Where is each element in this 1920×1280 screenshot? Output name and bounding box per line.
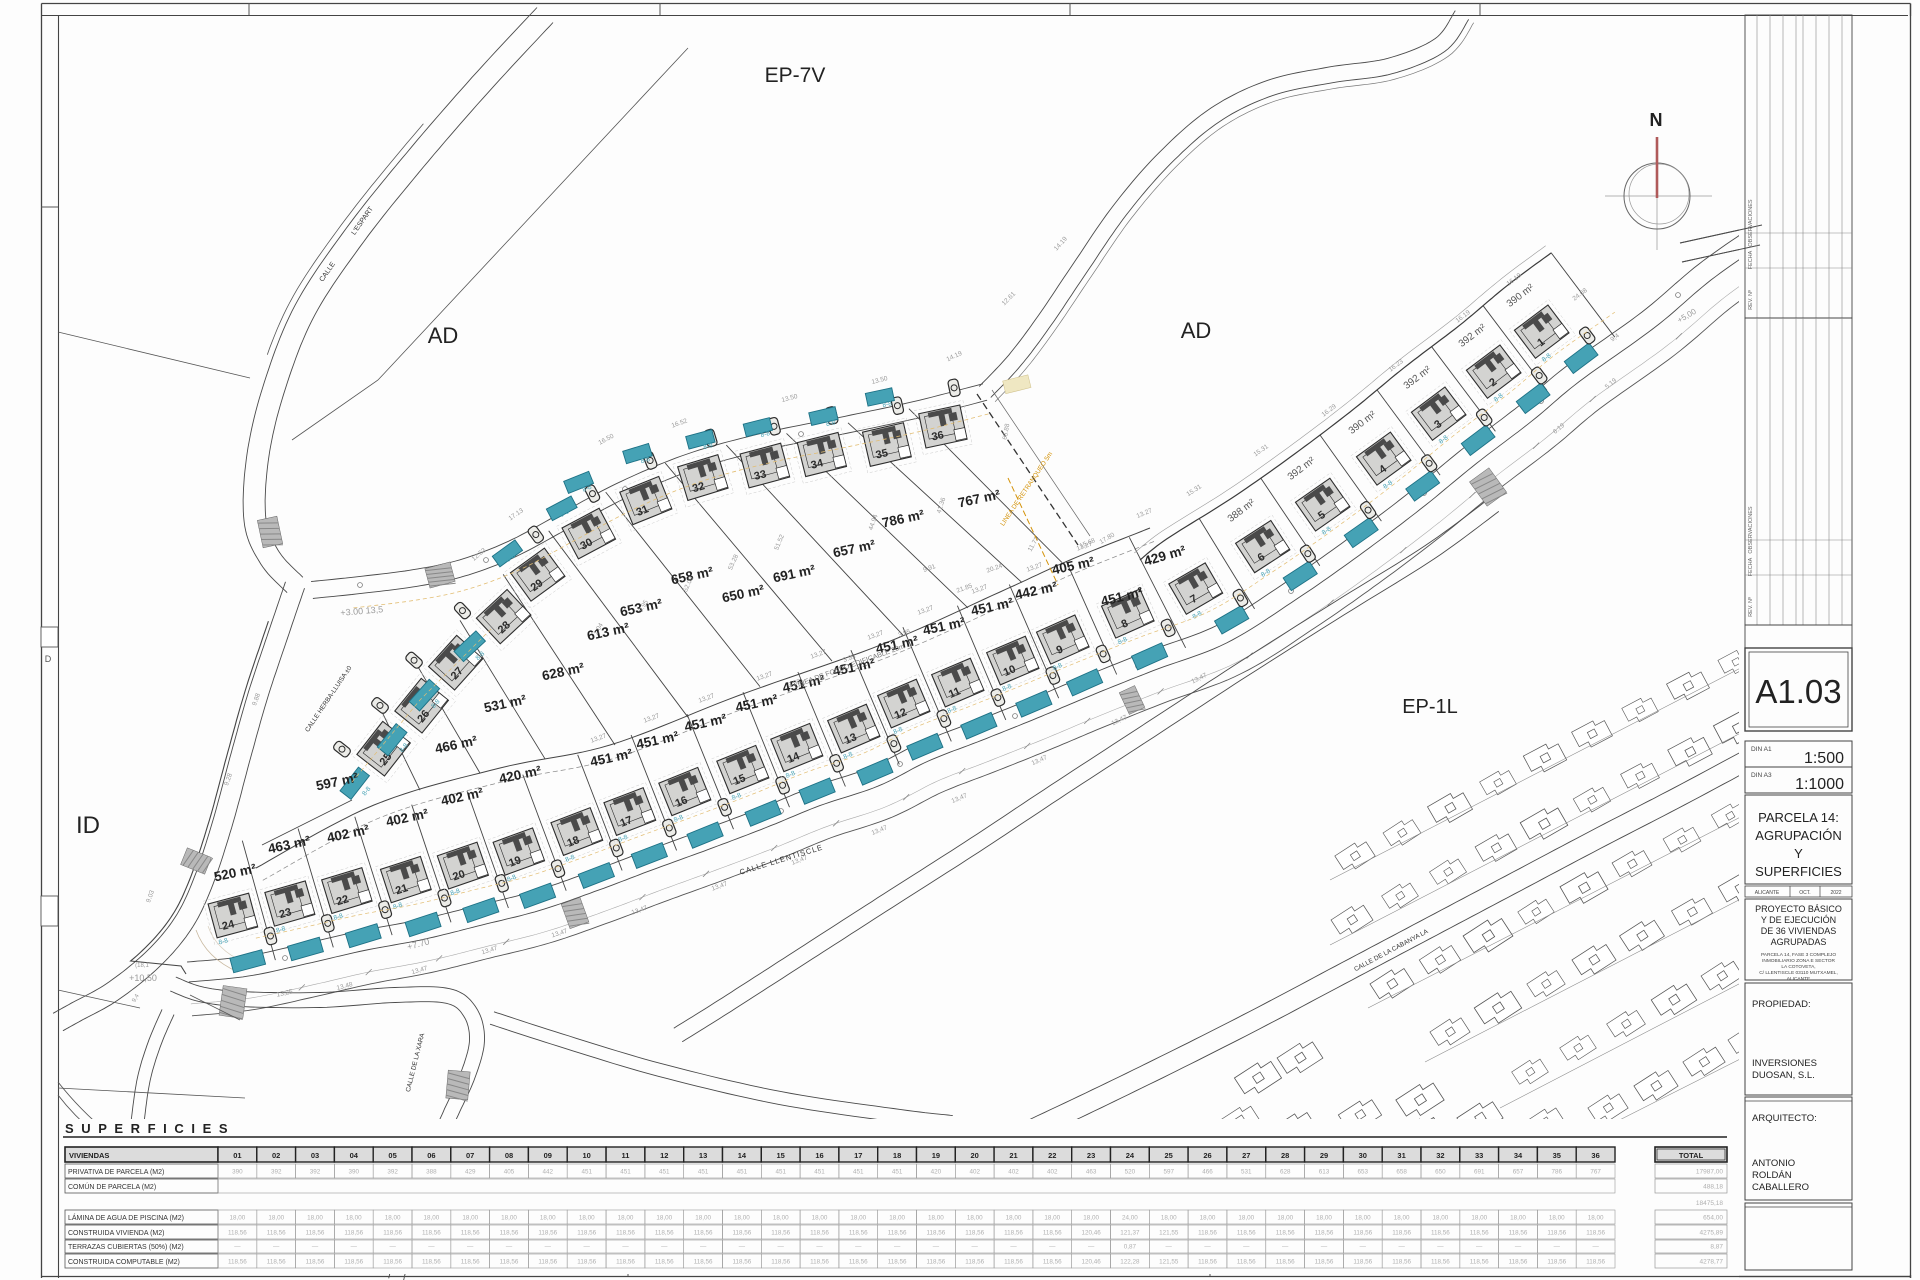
- svg-text:118,56: 118,56: [694, 1259, 713, 1266]
- svg-text:18,00: 18,00: [1083, 1215, 1099, 1222]
- svg-text:118,56: 118,56: [927, 1259, 946, 1266]
- svg-text:2022: 2022: [1830, 890, 1841, 896]
- svg-text:INVERSIONES: INVERSIONES: [1752, 1058, 1817, 1069]
- svg-text:451: 451: [698, 1169, 709, 1176]
- svg-text:118,56: 118,56: [1431, 1230, 1450, 1237]
- svg-text:18,00: 18,00: [1355, 1215, 1371, 1222]
- svg-text:650: 650: [1435, 1169, 1446, 1176]
- svg-text:12: 12: [660, 1151, 668, 1160]
- svg-text:402: 402: [1008, 1169, 1019, 1176]
- svg-text:118,56: 118,56: [500, 1259, 519, 1266]
- svg-text:402: 402: [969, 1169, 980, 1176]
- svg-text:15: 15: [777, 1151, 785, 1160]
- svg-text:—: —: [778, 1244, 785, 1251]
- svg-text:18,00: 18,00: [424, 1215, 440, 1222]
- svg-text:691: 691: [1474, 1169, 1485, 1176]
- svg-text:07: 07: [466, 1151, 474, 1160]
- svg-text:Y DE EJECUCIÓN: Y DE EJECUCIÓN: [1761, 915, 1836, 925]
- svg-text:118,56: 118,56: [655, 1230, 674, 1237]
- svg-text:118,56: 118,56: [1509, 1230, 1528, 1237]
- svg-text:118,56: 118,56: [422, 1230, 441, 1237]
- svg-text:—: —: [1437, 1244, 1444, 1251]
- svg-text:18,00: 18,00: [928, 1215, 944, 1222]
- svg-text:118,56: 118,56: [810, 1230, 829, 1237]
- svg-text:LÁMINA DE AGUA DE PISCINA: LÁMINA DE AGUA DE PISCINA (M2): [68, 1213, 184, 1222]
- svg-text:392: 392: [310, 1169, 321, 1176]
- svg-text:118,56: 118,56: [383, 1259, 402, 1266]
- svg-text:118,56: 118,56: [849, 1230, 868, 1237]
- svg-text:36: 36: [1591, 1151, 1599, 1160]
- svg-text:118,56: 118,56: [1470, 1259, 1489, 1266]
- svg-text:653: 653: [1358, 1169, 1369, 1176]
- svg-text:118,56: 118,56: [1470, 1230, 1489, 1237]
- svg-text:118,56: 118,56: [1431, 1259, 1450, 1266]
- svg-text:118,56: 118,56: [927, 1230, 946, 1237]
- svg-text:DUOSAN, S.L.: DUOSAN, S.L.: [1752, 1070, 1815, 1081]
- svg-text:8,87: 8,87: [1710, 1244, 1723, 1251]
- svg-text:18,00: 18,00: [540, 1215, 556, 1222]
- svg-text:118,56: 118,56: [538, 1259, 557, 1266]
- svg-text:28: 28: [1281, 1151, 1289, 1160]
- svg-text:VIVIENDAS: VIVIENDAS: [69, 1151, 109, 1160]
- svg-text:25: 25: [1165, 1151, 1173, 1160]
- svg-text:—: —: [1321, 1244, 1328, 1251]
- svg-text:18,00: 18,00: [734, 1215, 750, 1222]
- svg-text:—: —: [1592, 1244, 1599, 1251]
- svg-text:0,87: 0,87: [1124, 1244, 1137, 1251]
- svg-text:10: 10: [583, 1151, 591, 1160]
- svg-text:A1.03: A1.03: [1755, 673, 1841, 710]
- svg-text:628: 628: [1280, 1169, 1291, 1176]
- svg-text:420: 420: [931, 1169, 942, 1176]
- svg-text:D: D: [45, 654, 52, 664]
- svg-text:DE 36 VIVIENDAS: DE 36 VIVIENDAS: [1761, 926, 1837, 936]
- svg-text:118,56: 118,56: [771, 1230, 790, 1237]
- svg-text:463: 463: [1086, 1169, 1097, 1176]
- svg-text:ARQUITECTO:: ARQUITECTO:: [1752, 1113, 1817, 1124]
- svg-text:—: —: [1476, 1244, 1483, 1251]
- svg-text:24: 24: [1126, 1151, 1135, 1160]
- svg-text:24,00: 24,00: [1122, 1215, 1138, 1222]
- svg-text:FECHA: FECHA: [1748, 557, 1754, 576]
- svg-text:—: —: [351, 1244, 358, 1251]
- svg-text:18,00: 18,00: [773, 1215, 789, 1222]
- svg-text:451: 451: [581, 1169, 592, 1176]
- svg-text:11: 11: [622, 1151, 630, 1160]
- svg-text:AD: AD: [428, 323, 459, 348]
- svg-text:18,00: 18,00: [1471, 1215, 1487, 1222]
- svg-text:118,56: 118,56: [1547, 1230, 1566, 1237]
- svg-text:02: 02: [272, 1151, 280, 1160]
- svg-text:—: —: [894, 1244, 901, 1251]
- svg-text:14: 14: [738, 1151, 747, 1160]
- svg-text:31: 31: [1397, 1151, 1405, 1160]
- svg-text:18,00: 18,00: [1006, 1215, 1022, 1222]
- svg-text:EP-7V: EP-7V: [765, 64, 826, 87]
- svg-text:767: 767: [1590, 1169, 1601, 1176]
- svg-text:388: 388: [426, 1169, 437, 1176]
- svg-text:405: 405: [504, 1169, 515, 1176]
- svg-text:01: 01: [233, 1151, 241, 1160]
- svg-text:04: 04: [350, 1151, 359, 1160]
- svg-text:451: 451: [775, 1169, 786, 1176]
- svg-text:PARCELA 14:: PARCELA 14:: [1758, 810, 1839, 825]
- svg-text:—: —: [273, 1244, 280, 1251]
- svg-text:657: 657: [1513, 1169, 1524, 1176]
- svg-text:451: 451: [737, 1169, 748, 1176]
- svg-text:786: 786: [1552, 1169, 1563, 1176]
- svg-text:INMOBILIARIO ZONA E SECTOR: INMOBILIARIO ZONA E SECTOR: [1762, 958, 1835, 964]
- svg-text:ALICANTE: ALICANTE: [1787, 976, 1810, 982]
- svg-text:118,56: 118,56: [694, 1230, 713, 1237]
- svg-text:402: 402: [1047, 1169, 1058, 1176]
- svg-text:120,46: 120,46: [1081, 1259, 1101, 1266]
- svg-text:CONSTRUIDA COMPUTABLE (M2): CONSTRUIDA COMPUTABLE (M2): [68, 1259, 180, 1266]
- svg-text:118,56: 118,56: [344, 1230, 363, 1237]
- svg-text:—: —: [1282, 1244, 1289, 1251]
- svg-text:18,00: 18,00: [385, 1215, 401, 1222]
- svg-text:1:1000: 1:1000: [1795, 776, 1844, 793]
- svg-text:18,00: 18,00: [1238, 1215, 1254, 1222]
- svg-text:118,56: 118,56: [733, 1259, 752, 1266]
- svg-text:118,56: 118,56: [344, 1259, 363, 1266]
- svg-text:121,55: 121,55: [1159, 1259, 1179, 1266]
- svg-text:18,00: 18,00: [695, 1215, 711, 1222]
- svg-text:—: —: [389, 1244, 396, 1251]
- svg-text:118,56: 118,56: [1004, 1259, 1023, 1266]
- svg-text:118,56: 118,56: [267, 1230, 286, 1237]
- svg-text:18,00: 18,00: [1277, 1215, 1293, 1222]
- svg-text:118,56: 118,56: [267, 1259, 286, 1266]
- svg-text:118,56: 118,56: [849, 1259, 868, 1266]
- svg-text:—: —: [1204, 1244, 1211, 1251]
- svg-text:118,56: 118,56: [1004, 1230, 1023, 1237]
- svg-text:—: —: [1088, 1244, 1095, 1251]
- svg-text:118,56: 118,56: [1198, 1259, 1217, 1266]
- svg-text:30: 30: [1359, 1151, 1367, 1160]
- svg-text:—: —: [661, 1244, 668, 1251]
- svg-text:18,00: 18,00: [462, 1215, 478, 1222]
- svg-text:—: —: [467, 1244, 474, 1251]
- svg-text:121,37: 121,37: [1120, 1230, 1140, 1237]
- svg-text:EP-1L: EP-1L: [1402, 696, 1458, 718]
- svg-text:118,56: 118,56: [616, 1259, 635, 1266]
- svg-text:REV. Nº: REV. Nº: [1747, 597, 1754, 617]
- svg-text:OBSERVACIONES: OBSERVACIONES: [1748, 199, 1754, 247]
- svg-text:392: 392: [387, 1169, 398, 1176]
- svg-text:442: 442: [543, 1169, 554, 1176]
- svg-text:29: 29: [1320, 1151, 1328, 1160]
- svg-text:392: 392: [271, 1169, 282, 1176]
- svg-text:—: —: [1515, 1244, 1522, 1251]
- svg-text:118,56: 118,56: [500, 1230, 519, 1237]
- svg-text:C/ LLENTISCLE 03110 MUTXAMEL,: C/ LLENTISCLE 03110 MUTXAMEL,: [1759, 970, 1838, 976]
- svg-text:118,56: 118,56: [461, 1230, 480, 1237]
- svg-text:36: 36: [931, 429, 945, 443]
- svg-text:118,56: 118,56: [965, 1230, 984, 1237]
- svg-text:REV. Nº: REV. Nº: [1747, 290, 1754, 310]
- svg-text:—: —: [700, 1244, 707, 1251]
- svg-text:531: 531: [1241, 1169, 1252, 1176]
- svg-text:118,56: 118,56: [1315, 1259, 1334, 1266]
- svg-text:18,00: 18,00: [230, 1215, 246, 1222]
- svg-text:OBSERVACIONES: OBSERVACIONES: [1748, 506, 1754, 554]
- svg-text:ROLDÁN: ROLDÁN: [1752, 1170, 1792, 1181]
- svg-text:118,56: 118,56: [810, 1259, 829, 1266]
- svg-text:451: 451: [814, 1169, 825, 1176]
- svg-text:—: —: [1398, 1244, 1405, 1251]
- svg-text:118,56: 118,56: [422, 1259, 441, 1266]
- svg-text:13: 13: [699, 1151, 707, 1160]
- svg-text:—: —: [622, 1244, 629, 1251]
- svg-text:4278,77: 4278,77: [1700, 1259, 1724, 1266]
- svg-text:429: 429: [465, 1169, 476, 1176]
- svg-text:26: 26: [1203, 1151, 1211, 1160]
- svg-text:PROPIEDAD:: PROPIEDAD:: [1752, 999, 1811, 1010]
- svg-text:—: —: [933, 1244, 940, 1251]
- svg-text:118,56: 118,56: [1392, 1230, 1411, 1237]
- svg-text:18,00: 18,00: [656, 1215, 672, 1222]
- svg-text:658: 658: [1396, 1169, 1407, 1176]
- svg-text:20: 20: [971, 1151, 979, 1160]
- svg-text:ID: ID: [76, 812, 100, 839]
- svg-text:18,00: 18,00: [1588, 1215, 1604, 1222]
- svg-text:4275,89: 4275,89: [1700, 1230, 1724, 1237]
- svg-text:18,00: 18,00: [579, 1215, 595, 1222]
- svg-text:PRIVATIVA DE PARCELA (M2): PRIVATIVA DE PARCELA (M2): [68, 1169, 164, 1176]
- svg-text:18,00: 18,00: [1394, 1215, 1410, 1222]
- svg-text:118,56: 118,56: [655, 1259, 674, 1266]
- svg-text:S U P E R F I C I E S: S U P E R F I C I E S: [65, 1121, 230, 1136]
- svg-text:PARCELA 14, FASE 3 COMPLEJO: PARCELA 14, FASE 3 COMPLEJO: [1761, 952, 1836, 958]
- svg-text:DIN A3: DIN A3: [1751, 772, 1772, 779]
- svg-text:19: 19: [932, 1151, 940, 1160]
- svg-text:18,00: 18,00: [1433, 1215, 1449, 1222]
- svg-text:118,56: 118,56: [1509, 1259, 1528, 1266]
- svg-text:TERRAZAS CUBIERTAS (50%) (M: TERRAZAS CUBIERTAS (50%) (M2): [68, 1244, 184, 1251]
- svg-text:05: 05: [388, 1151, 396, 1160]
- svg-text:08: 08: [505, 1151, 513, 1160]
- svg-text:(18,1: (18,1: [135, 963, 149, 969]
- svg-text:CABALLERO: CABALLERO: [1752, 1182, 1809, 1193]
- svg-text:ALICANTE: ALICANTE: [1755, 890, 1780, 896]
- svg-text:121,55: 121,55: [1159, 1230, 1179, 1237]
- svg-text:118,56: 118,56: [228, 1259, 247, 1266]
- svg-text:118,56: 118,56: [306, 1259, 325, 1266]
- svg-text:18,00: 18,00: [1510, 1215, 1526, 1222]
- svg-text:N: N: [1650, 110, 1663, 130]
- svg-text:1:500: 1:500: [1804, 750, 1844, 767]
- svg-text:—: —: [584, 1244, 591, 1251]
- svg-text:06: 06: [427, 1151, 435, 1160]
- svg-text:—: —: [545, 1244, 552, 1251]
- svg-text:118,56: 118,56: [888, 1259, 907, 1266]
- svg-text:118,56: 118,56: [1353, 1230, 1372, 1237]
- svg-text:34: 34: [1514, 1151, 1523, 1160]
- svg-text:18: 18: [893, 1151, 901, 1160]
- svg-text:18,00: 18,00: [1549, 1215, 1565, 1222]
- svg-text:+10,50: +10,50: [129, 973, 157, 983]
- svg-text:—: —: [855, 1244, 862, 1251]
- svg-text:451: 451: [620, 1169, 631, 1176]
- svg-text:18475,18: 18475,18: [1696, 1200, 1723, 1207]
- svg-text:18,00: 18,00: [889, 1215, 905, 1222]
- svg-text:—: —: [312, 1244, 319, 1251]
- svg-text:CONSTRUIDA VIVIENDA (M2): CONSTRUIDA VIVIENDA (M2): [68, 1230, 164, 1237]
- svg-text:118,56: 118,56: [306, 1230, 325, 1237]
- svg-text:17: 17: [854, 1151, 862, 1160]
- svg-text:451: 451: [892, 1169, 903, 1176]
- svg-text:09: 09: [544, 1151, 552, 1160]
- svg-text:390: 390: [232, 1169, 243, 1176]
- svg-text:654,00: 654,00: [1703, 1215, 1723, 1222]
- svg-text:451: 451: [659, 1169, 670, 1176]
- svg-text:18,00: 18,00: [268, 1215, 284, 1222]
- svg-text:118,56: 118,56: [888, 1230, 907, 1237]
- svg-text:118,56: 118,56: [1547, 1259, 1566, 1266]
- svg-text:118,56: 118,56: [1237, 1230, 1256, 1237]
- svg-text:18,00: 18,00: [307, 1215, 323, 1222]
- svg-text:390: 390: [349, 1169, 360, 1176]
- svg-text:—: —: [506, 1244, 513, 1251]
- svg-text:OCT.: OCT.: [1799, 890, 1810, 896]
- svg-text:118,56: 118,56: [771, 1259, 790, 1266]
- svg-text:ANTONIO: ANTONIO: [1752, 1158, 1795, 1169]
- svg-text:18,00: 18,00: [1044, 1215, 1060, 1222]
- svg-text:118,56: 118,56: [577, 1230, 596, 1237]
- svg-text:118,56: 118,56: [1043, 1259, 1062, 1266]
- svg-text:03: 03: [311, 1151, 319, 1160]
- svg-text:118,56: 118,56: [228, 1230, 247, 1237]
- svg-text:—: —: [428, 1244, 435, 1251]
- svg-text:118,56: 118,56: [1586, 1230, 1605, 1237]
- svg-text:118,56: 118,56: [577, 1259, 596, 1266]
- svg-text:22: 22: [1048, 1151, 1056, 1160]
- svg-text:520: 520: [1125, 1169, 1136, 1176]
- svg-text:118,56: 118,56: [1237, 1259, 1256, 1266]
- svg-text:118,56: 118,56: [1276, 1259, 1295, 1266]
- svg-text:—: —: [739, 1244, 746, 1251]
- svg-text:AD: AD: [1181, 318, 1212, 343]
- svg-text:—: —: [816, 1244, 823, 1251]
- svg-text:DIN A1: DIN A1: [1751, 746, 1772, 753]
- svg-text:23: 23: [1087, 1151, 1095, 1160]
- svg-text:18,00: 18,00: [501, 1215, 517, 1222]
- svg-text:35: 35: [1553, 1151, 1561, 1160]
- svg-text:—: —: [972, 1244, 979, 1251]
- svg-text:COMÚN DE PARCELA (M2): COMÚN DE PARCELA (M2): [68, 1182, 156, 1191]
- svg-text:122,28: 122,28: [1120, 1259, 1140, 1266]
- svg-text:17987,00: 17987,00: [1696, 1169, 1723, 1176]
- svg-text:—: —: [1049, 1244, 1056, 1251]
- svg-text:118,56: 118,56: [538, 1230, 557, 1237]
- svg-text:LA COTOVETA,: LA COTOVETA,: [1781, 964, 1815, 970]
- svg-text:18,00: 18,00: [618, 1215, 634, 1222]
- svg-text:451: 451: [853, 1169, 864, 1176]
- svg-text:16: 16: [815, 1151, 823, 1160]
- svg-text:118,56: 118,56: [1276, 1230, 1295, 1237]
- svg-text:TOTAL: TOTAL: [1679, 1151, 1704, 1160]
- svg-text:118,56: 118,56: [733, 1230, 752, 1237]
- svg-text:—: —: [1360, 1244, 1367, 1251]
- svg-text:—: —: [1554, 1244, 1561, 1251]
- svg-text:18,00: 18,00: [850, 1215, 866, 1222]
- svg-text:488,18: 488,18: [1703, 1184, 1723, 1191]
- svg-text:—: —: [1166, 1244, 1173, 1251]
- svg-text:118,56: 118,56: [1353, 1259, 1372, 1266]
- svg-text:33: 33: [1475, 1151, 1483, 1160]
- svg-text:—: —: [234, 1244, 241, 1251]
- svg-text:21: 21: [1009, 1151, 1017, 1160]
- svg-text:—: —: [1010, 1244, 1017, 1251]
- svg-text:18,00: 18,00: [346, 1215, 362, 1222]
- svg-text:118,56: 118,56: [1392, 1259, 1411, 1266]
- svg-text:118,56: 118,56: [965, 1259, 984, 1266]
- svg-text:613: 613: [1319, 1169, 1330, 1176]
- svg-text:118,56: 118,56: [1043, 1230, 1062, 1237]
- svg-text:Y: Y: [1794, 846, 1803, 861]
- svg-text:18,00: 18,00: [967, 1215, 983, 1222]
- svg-text:FECHA: FECHA: [1748, 250, 1754, 269]
- svg-text:18,00: 18,00: [1161, 1215, 1177, 1222]
- svg-text:118,56: 118,56: [383, 1230, 402, 1237]
- svg-text:27: 27: [1242, 1151, 1250, 1160]
- svg-text:PROYECTO BÁSICO: PROYECTO BÁSICO: [1755, 904, 1842, 914]
- svg-text:18,00: 18,00: [812, 1215, 828, 1222]
- svg-text:597: 597: [1163, 1169, 1174, 1176]
- svg-text:SUPERFICIES: SUPERFICIES: [1755, 864, 1842, 879]
- svg-text:18,00: 18,00: [1200, 1215, 1216, 1222]
- svg-text:32: 32: [1436, 1151, 1444, 1160]
- svg-text:118,56: 118,56: [461, 1259, 480, 1266]
- svg-text:AGRUPACIÓN: AGRUPACIÓN: [1755, 828, 1841, 843]
- svg-text:118,56: 118,56: [1315, 1230, 1334, 1237]
- svg-text:—: —: [1243, 1244, 1250, 1251]
- svg-text:118,56: 118,56: [1586, 1259, 1605, 1266]
- svg-text:118,56: 118,56: [616, 1230, 635, 1237]
- svg-text:118,56: 118,56: [1198, 1230, 1217, 1237]
- svg-text:AGRUPADAS: AGRUPADAS: [1771, 937, 1827, 947]
- svg-text:120,46: 120,46: [1081, 1230, 1101, 1237]
- svg-text:466: 466: [1202, 1169, 1213, 1176]
- svg-text:18,00: 18,00: [1316, 1215, 1332, 1222]
